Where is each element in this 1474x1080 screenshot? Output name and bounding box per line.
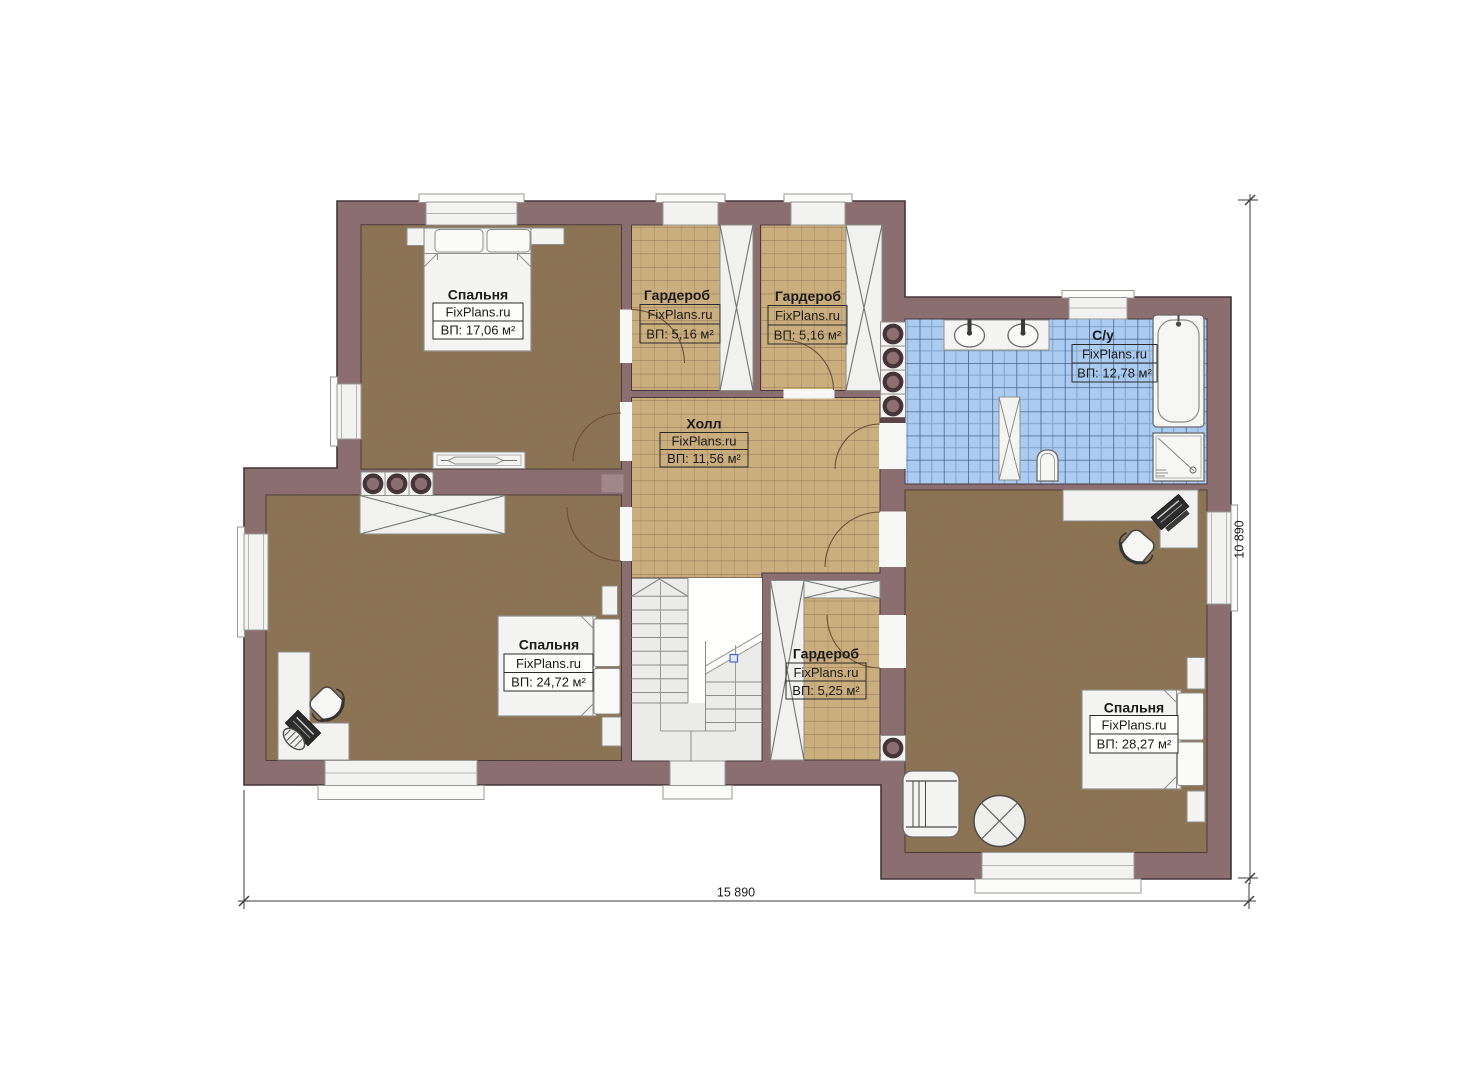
svg-text:ВП: 12,78 м²: ВП: 12,78 м²: [1077, 366, 1152, 381]
svg-text:ВП: 28,27 м²: ВП: 28,27 м²: [1097, 737, 1172, 752]
svg-text:ВП: 5,16 м²: ВП: 5,16 м²: [646, 327, 714, 342]
svg-text:Холл: Холл: [686, 416, 721, 432]
svg-text:Гардероб: Гардероб: [775, 288, 842, 304]
svg-text:FixPlans.ru: FixPlans.ru: [516, 656, 581, 671]
svg-text:ВП: 24,72 м²: ВП: 24,72 м²: [511, 675, 586, 690]
svg-text:Спальня: Спальня: [1104, 700, 1164, 716]
svg-text:Спальня: Спальня: [519, 637, 579, 653]
svg-text:Спальня: Спальня: [448, 287, 508, 303]
svg-text:FixPlans.ru: FixPlans.ru: [445, 305, 510, 320]
svg-text:Гардероб: Гардероб: [644, 287, 711, 303]
svg-text:FixPlans.ru: FixPlans.ru: [671, 434, 736, 449]
svg-text:FixPlans.ru: FixPlans.ru: [1082, 347, 1147, 362]
svg-text:Гардероб: Гардероб: [793, 646, 860, 662]
svg-text:ВП: 5,16 м²: ВП: 5,16 м²: [774, 328, 842, 343]
svg-text:10 890: 10 890: [1233, 520, 1247, 558]
svg-text:15 890: 15 890: [717, 886, 755, 900]
svg-text:ВП: 17,06 м²: ВП: 17,06 м²: [441, 323, 516, 338]
svg-text:ВП: 11,56 м²: ВП: 11,56 м²: [667, 451, 741, 466]
svg-text:FixPlans.ru: FixPlans.ru: [793, 665, 858, 680]
svg-text:FixPlans.ru: FixPlans.ru: [775, 308, 840, 323]
svg-text:ВП: 5,25 м²: ВП: 5,25 м²: [792, 683, 860, 698]
svg-text:FixPlans.ru: FixPlans.ru: [1101, 718, 1166, 733]
svg-text:FixPlans.ru: FixPlans.ru: [647, 307, 712, 322]
svg-text:С/у: С/у: [1092, 327, 1114, 343]
